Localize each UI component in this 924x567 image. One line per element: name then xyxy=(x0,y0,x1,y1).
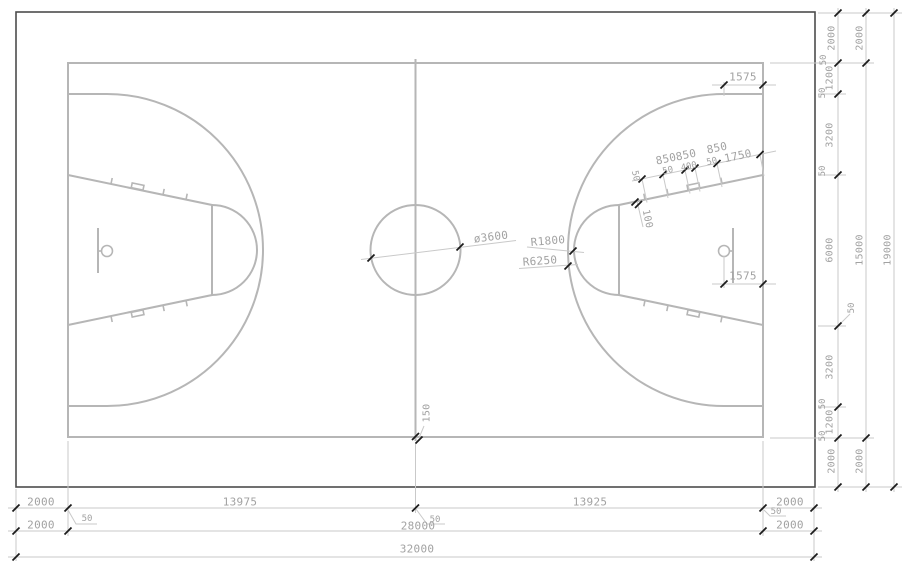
dim-w50-a: 50 xyxy=(819,55,829,66)
dim-apron-bottom-2: 2000 xyxy=(855,448,866,473)
dim-line-width-right: 50 xyxy=(771,507,782,517)
dim-apron-left-2: 2000 xyxy=(27,519,55,532)
basketball-court-plan-drawing: 2000 13975 13925 2000 2000 28000 2000 50… xyxy=(0,0,924,567)
dim-w50-c: 50 xyxy=(818,166,828,177)
dim-w50-d: 50 xyxy=(847,303,857,314)
dim-basket-to-endline: 1575 xyxy=(729,270,757,283)
dim-half-court-left: 13975 xyxy=(223,496,258,509)
dim-apron-bottom: 2000 xyxy=(827,448,838,473)
dim-apron-top-2: 2000 xyxy=(855,25,866,50)
dim-w50-b: 50 xyxy=(818,88,828,99)
dim-1200-top: 1200 xyxy=(825,65,836,90)
dim-w50-f: 50 xyxy=(818,431,828,442)
dim-apron-left: 2000 xyxy=(27,496,55,509)
dim-apron-right-2: 2000 xyxy=(776,519,804,532)
dim-total-length: 32000 xyxy=(400,543,435,556)
dim-total-width: 19000 xyxy=(883,234,894,266)
dim-apron-top: 2000 xyxy=(827,25,838,50)
dim-line-width-center: 50 xyxy=(430,515,441,525)
cad-canvas: 2000 13975 13925 2000 2000 28000 2000 50… xyxy=(0,0,924,567)
dim-6000-key-width: 6000 xyxy=(825,237,836,262)
dim-3200-top: 3200 xyxy=(825,122,836,147)
dim-three-point-straight: 1575 xyxy=(729,71,757,84)
dim-3200-bottom: 3200 xyxy=(825,354,836,379)
dim-center-line-extension: 150 xyxy=(422,404,433,423)
dim-three-point-radius: R6250 xyxy=(522,253,557,268)
dim-w50-e: 50 xyxy=(818,399,828,410)
dim-court-width: 15000 xyxy=(855,234,866,266)
dim-half-court-right: 13925 xyxy=(573,496,608,509)
dim-line-width-left: 50 xyxy=(82,514,93,524)
